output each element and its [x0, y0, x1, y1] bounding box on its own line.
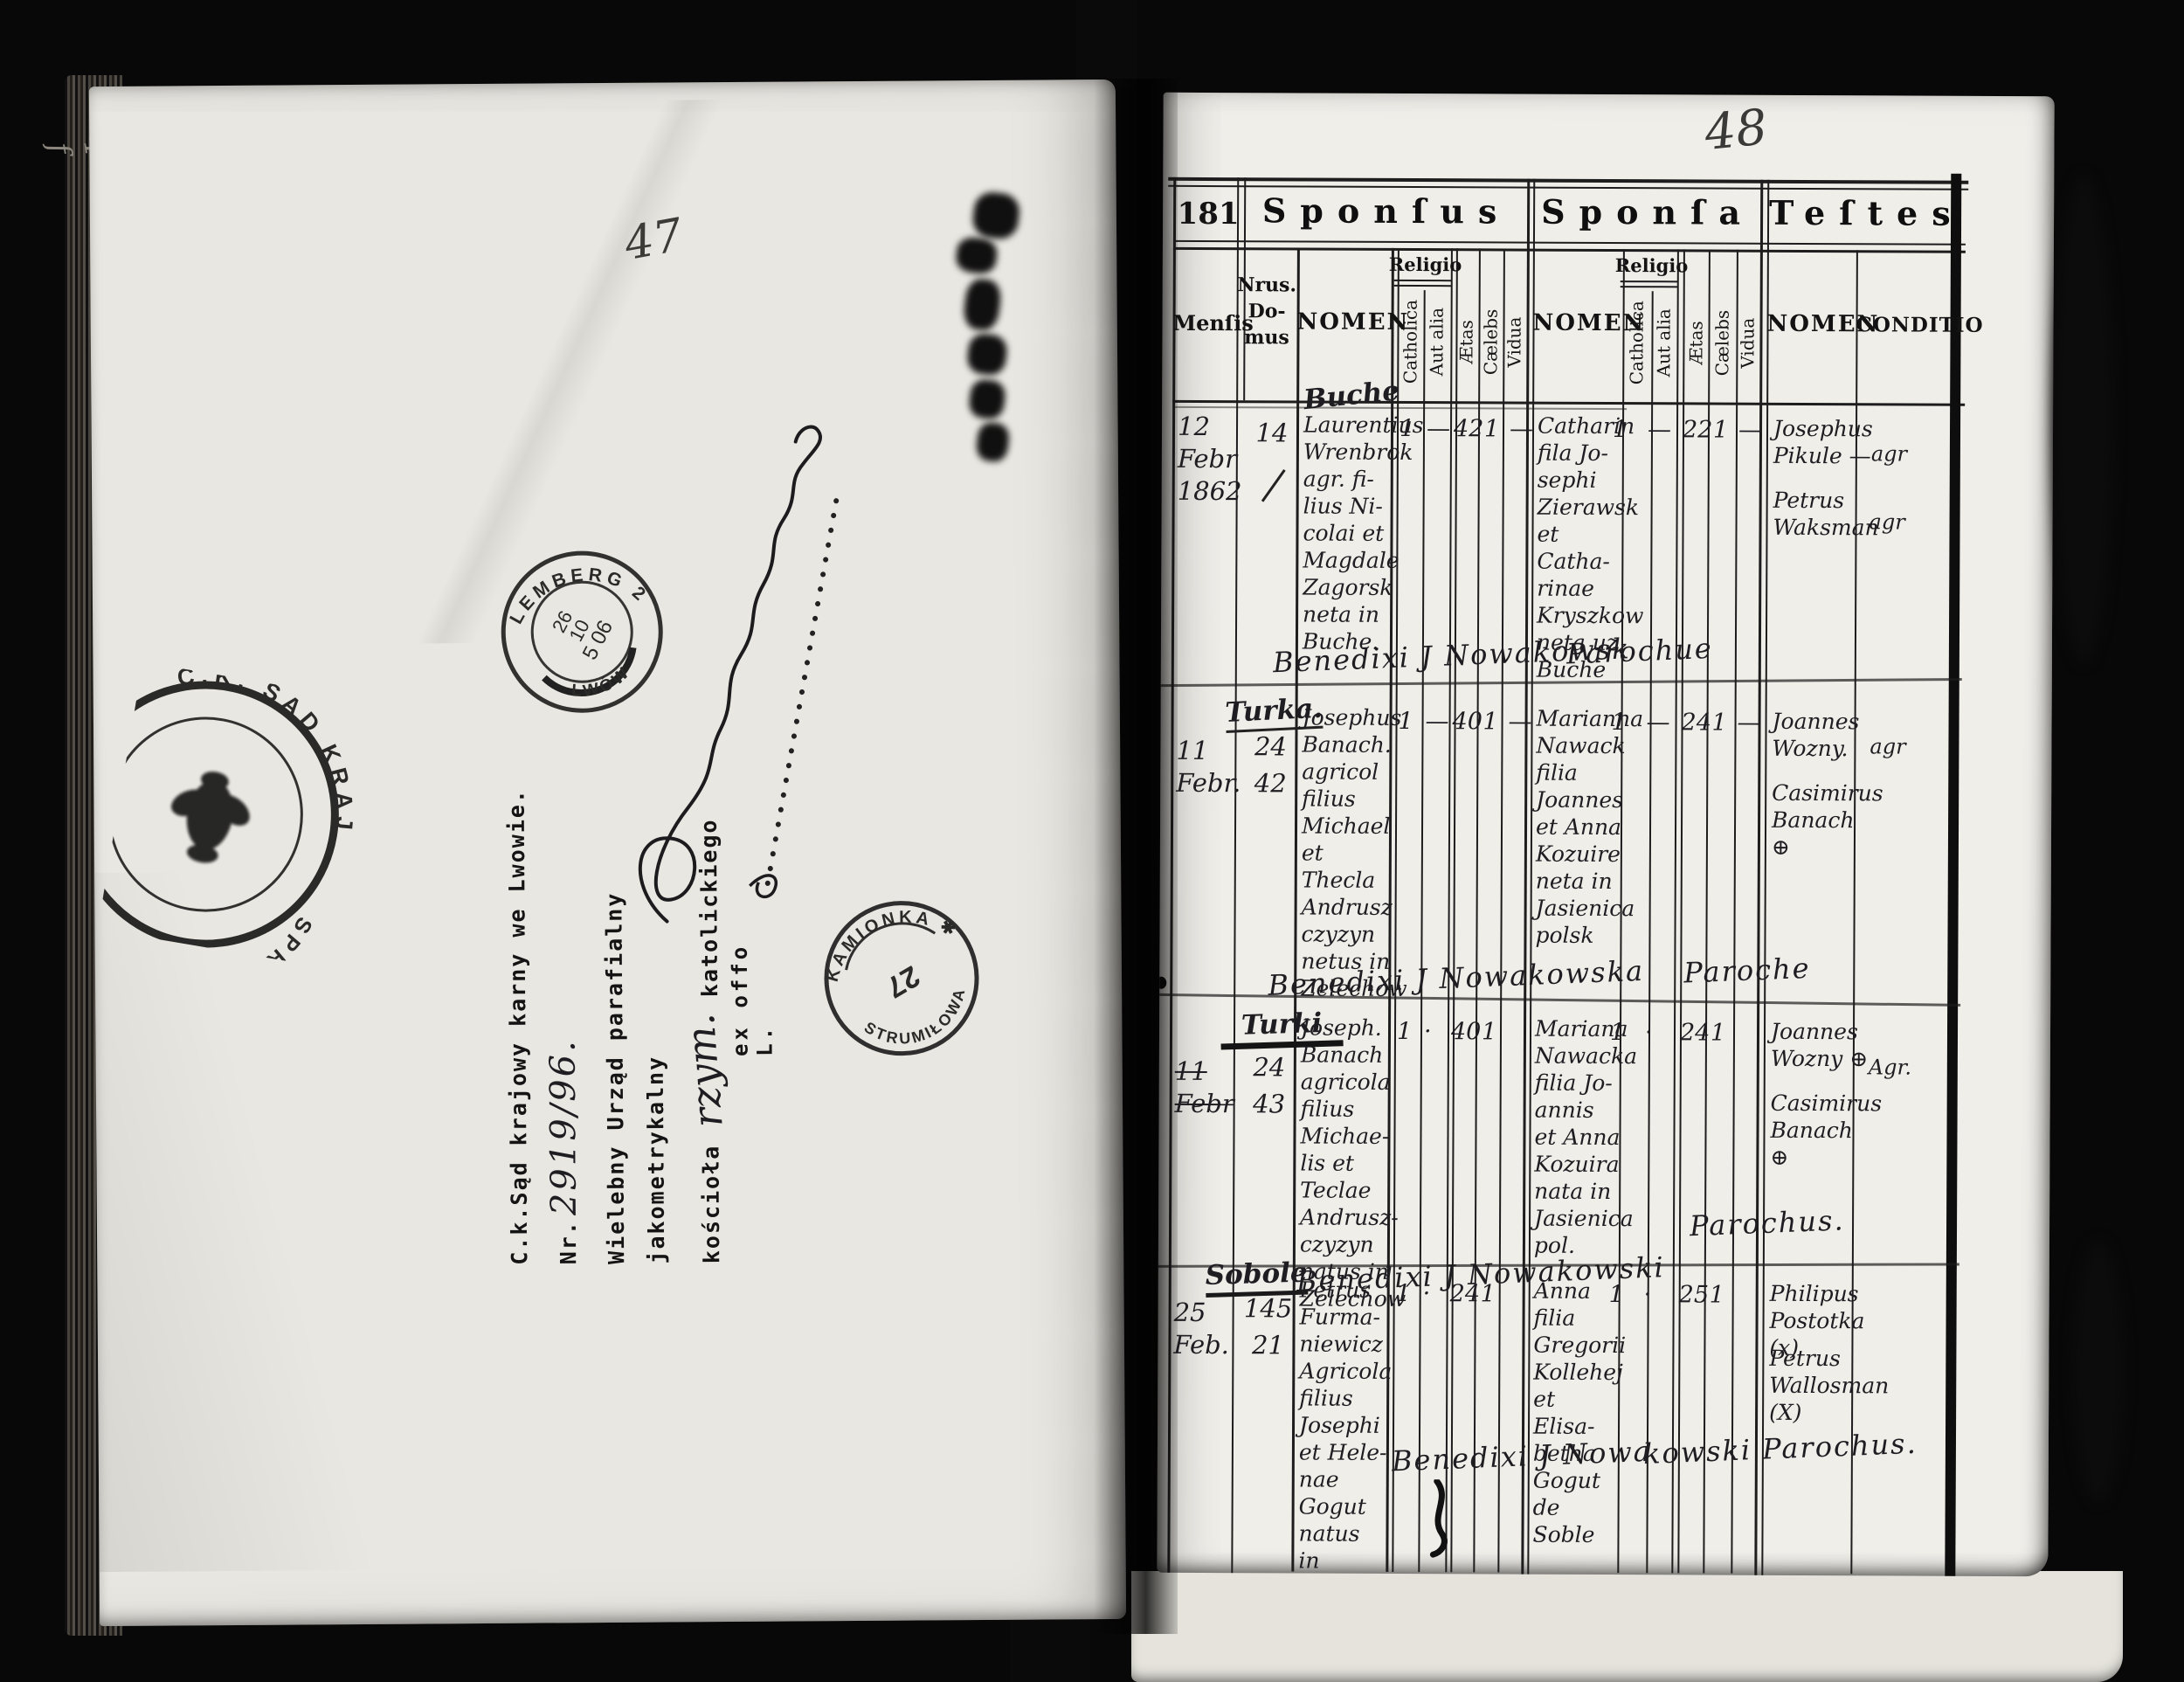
col-nomen-sponsa: NOMEN	[1532, 310, 1622, 336]
sponsa-aut-alia-mark: ·	[1644, 1281, 1652, 1308]
col-aut-alia-sponsa: Aut alia	[1654, 286, 1674, 399]
kosciola-word: kościoła	[698, 1145, 724, 1264]
sponsa-catholica-mark: 1	[1609, 1281, 1624, 1308]
witness-1-name: Joannes Wozny.	[1772, 708, 1876, 763]
col-aetas-sponsa: Ætas	[1686, 286, 1706, 399]
sponsa-caelebs-mark: 1	[1711, 1020, 1725, 1047]
left-page: 47 C.K. SĄD KRAJ. W SPRAW.	[89, 80, 1126, 1626]
sponsa-age: 25	[1679, 1281, 1709, 1308]
double-eagle-emblem	[158, 765, 261, 870]
fore-edge-stain	[2053, 175, 2114, 664]
sponsus-vidua-mark: —	[1508, 709, 1531, 736]
col-nrus-domus: Nrus. Do- mus	[1236, 272, 1296, 350]
marriage-date: 12 Febr 1862	[1178, 411, 1242, 508]
right-page: 48	[1157, 93, 2054, 1576]
witness-1-condition: Agr.	[1869, 1055, 1911, 1079]
sponsus-caelebs-mark: 1	[1484, 415, 1499, 442]
sponsus-vidua-mark: —	[1510, 416, 1533, 443]
marriage-date: 25 Feb.	[1173, 1297, 1238, 1361]
sponsus-name: Josephus Banach. agricol filius Michael …	[1301, 703, 1393, 1001]
benediction-parochus: Parochue	[1565, 632, 1713, 671]
table-line	[1173, 240, 1966, 246]
witness-1-condition: agr	[1871, 441, 1907, 466]
folio-number: 181	[1173, 197, 1243, 232]
court-letter-line1: C.k.Sąd krajowy karny we Lwowie.	[497, 758, 539, 1265]
sponsa-catholica-mark: 1	[1613, 416, 1628, 443]
fore-edge-stain	[2072, 1241, 2125, 1503]
col-nomen-testes: NOMEN	[1766, 311, 1856, 337]
sponsus-age: 40	[1451, 1018, 1481, 1045]
col-vidua-sponsus: Vidua	[1504, 285, 1524, 398]
illegible-ink-stamp	[921, 181, 1048, 470]
pen-flourish	[1261, 469, 1286, 502]
sponsa-name: Marianna Nawack filia Joannes et Anna Ko…	[1535, 705, 1623, 949]
table-line	[1168, 185, 1968, 190]
witness-2-name: Petrus Waksman	[1773, 487, 1877, 542]
col-catholica-sponsa: Catholica	[1627, 286, 1647, 399]
register-entry: Turka. 11 Febr. 24 42 Josephus Banach. a…	[1170, 693, 1964, 1004]
sponsa-name: Anna filia Gregorii Kollehej et Elisa- b…	[1532, 1277, 1621, 1548]
sponsa-name: Mariana Nawacka filia Jo- annis et Anna …	[1534, 1015, 1622, 1259]
sponsus-group-header: Sponſus	[1246, 190, 1527, 231]
witness-1-condition: agr	[1870, 734, 1905, 758]
witness-2-condition: agr	[1870, 509, 1905, 534]
court-seal-stamp: C.K. SĄD KRAJ. W SPRAW.	[98, 662, 376, 969]
sponsa-vidua-mark: —	[1738, 417, 1762, 444]
page-number-pencil-right: 48	[1702, 99, 1769, 162]
col-religio-sponsa: Religio	[1615, 254, 1685, 276]
katolickiego-word: katolickiego	[696, 818, 722, 997]
sponsus-age: 24	[1450, 1280, 1480, 1307]
nr-handwritten-number: 2919/96.	[543, 1038, 584, 1215]
sponsa-aut-alia-mark: —	[1646, 709, 1669, 736]
col-mensis: Menſis	[1172, 310, 1236, 336]
sponsa-age: 24	[1680, 1019, 1710, 1046]
sponsa-aut-alia-mark: —	[1648, 416, 1671, 443]
house-number: 145 21	[1243, 1290, 1292, 1363]
sponsa-catholica-mark: 1	[1611, 709, 1626, 736]
house-number: 24 42	[1246, 728, 1295, 801]
place-name: Buche	[1303, 375, 1401, 416]
witness-1-name: Josephus Pikule —	[1773, 415, 1878, 470]
marriage-date: 11 Febr	[1175, 1056, 1240, 1120]
sponsa-catholica-mark: 1	[1610, 1019, 1625, 1046]
register-scan: 4 f 47 C.K. SĄD KRAJ. W	[0, 0, 2184, 1682]
sponsa-caelebs-mark: 1	[1711, 709, 1726, 737]
ink-flourish	[1424, 1479, 1459, 1558]
underlying-page-edge	[1131, 1571, 2123, 1682]
sponsus-name: Laurentius Wrenbrok agr. fi- lius Ni- co…	[1303, 411, 1394, 654]
sponsus-catholica-mark: 1	[1400, 415, 1414, 442]
house-number: 24 43	[1245, 1049, 1294, 1122]
witness-2-name: Casimirus Banach ⊕	[1772, 779, 1876, 862]
col-religio-sponsus: Religio	[1389, 253, 1459, 275]
typed-court-letter: C.k.Sąd krajowy karny we Lwowie. Nr. 291…	[497, 757, 743, 1265]
benediction-parochus: Paroche	[1683, 952, 1812, 990]
table-line	[1621, 280, 1678, 282]
table-line	[1168, 177, 1968, 184]
benediction-parochus: kowski Parochus.	[1642, 1427, 1918, 1471]
svg-text:27: 27	[880, 959, 925, 1004]
register-entry: Buche 12 Febr 1862 14 Laurentius Wrenbro…	[1171, 400, 1965, 683]
sponsa-age: 24	[1681, 709, 1711, 736]
sponsus-aut-alia-mark: —	[1425, 708, 1448, 735]
witness-2-name: Casimirus Banach ⊕	[1770, 1090, 1875, 1172]
register-entry: Turki 11 Febr 24 43 Joseph. Banach agric…	[1169, 1003, 1962, 1267]
sponsa-aut-alia-mark: ·	[1645, 1019, 1653, 1046]
sponsa-caelebs-mark: 1	[1713, 417, 1728, 444]
testes-group-header: Teſtes	[1769, 193, 1951, 233]
sponsus-age: 42	[1454, 415, 1483, 442]
register-entry: Sobole 25 Feb. 145 21 Petrus Furma- niew…	[1167, 1265, 1961, 1576]
col-catholica-sponsus: Catholica	[1400, 285, 1420, 398]
sponsus-catholica-mark: 1	[1397, 1018, 1412, 1045]
house-number: 14	[1248, 414, 1296, 451]
marriage-register-table: 181 Sponſus Sponſa Teſtes Menſis Nrus. D…	[1167, 177, 1968, 1576]
court-letter-line3: Wielebny Urząd parafialny jakometrykalny	[593, 757, 677, 1264]
nr-prefix: Nr.	[556, 1220, 581, 1264]
witness-2-name: Petrus Wallosman (X)	[1769, 1345, 1874, 1427]
col-conditio: CONDITIO	[1856, 313, 1950, 336]
col-aetas-sponsus: Ætas	[1456, 285, 1476, 398]
sponsus-name: Petrus Furma- niewicz Agricola filius Jo…	[1298, 1276, 1391, 1576]
sponsus-aut-alia-mark: ·	[1423, 1280, 1431, 1307]
col-vidua-sponsa: Vidua	[1738, 287, 1758, 400]
sponsus-catholica-mark: 1	[1396, 1280, 1411, 1307]
sponsus-age: 40	[1452, 708, 1482, 735]
col-nomen-sponsus: NOMEN	[1296, 308, 1391, 335]
marriage-date: 11 Febr.	[1176, 735, 1241, 799]
sponsus-catholica-mark: 1	[1398, 708, 1413, 735]
ex-offo-note: ex offo L.	[727, 908, 777, 1056]
sponsus-caelebs-mark: 1	[1482, 708, 1497, 735]
col-caelebs-sponsus: Cælebs	[1481, 285, 1501, 398]
sponsa-vidua-mark: —	[1737, 709, 1760, 737]
book-gutter-shadow	[1094, 79, 1178, 1634]
sponsus-caelebs-mark: 1	[1482, 1018, 1496, 1045]
sponsus-aut-alia-mark: —	[1427, 415, 1450, 442]
col-aut-alia-sponsus: Aut alia	[1427, 285, 1447, 398]
table-line	[1173, 247, 1966, 253]
witness-1-name: Joannes Wozny ⊕	[1771, 1018, 1876, 1073]
bookmark-ribbon-top	[1076, 0, 1137, 87]
col-caelebs-sponsa: Cælebs	[1712, 287, 1732, 400]
sponsus-aut-alia-mark: ·	[1424, 1018, 1432, 1045]
table-line	[1394, 280, 1452, 281]
sponsa-age: 22	[1683, 416, 1712, 443]
sponsus-caelebs-mark: 1	[1481, 1280, 1496, 1307]
page-number-pencil-left: 47	[620, 209, 687, 271]
benediction-parochus: Parochus.	[1689, 1203, 1845, 1242]
rite-handwritten-insertion: rzym.	[672, 1012, 736, 1130]
court-letter-line2: Nr. 2919/96.	[536, 758, 597, 1264]
sponsa-caelebs-mark: 1	[1710, 1282, 1724, 1309]
sponsa-group-header: Sponſa	[1535, 192, 1760, 232]
